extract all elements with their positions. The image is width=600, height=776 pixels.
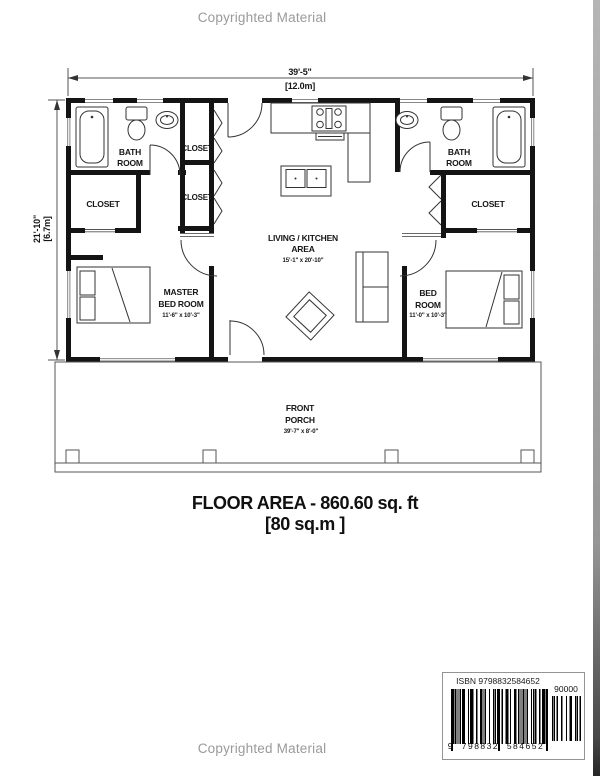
isbn-label: ISBN 9798832584652 [445, 676, 551, 686]
label-closet-right: CLOSET [471, 199, 505, 209]
toilet-right-icon [441, 107, 462, 140]
barcode-addon-bars-icon [552, 696, 582, 741]
back-door-opening [228, 98, 262, 104]
kitchen-island-sink-icon [281, 166, 331, 196]
label-bath-left-2: ROOM [117, 158, 143, 168]
dim-height-ft: 21'-10" [32, 215, 42, 243]
label-bed2-2: ROOM [415, 300, 441, 310]
sofa-icon [356, 252, 388, 322]
label-master: MASTER [164, 287, 199, 297]
sink-right-icon [396, 112, 418, 129]
floor-area-caption: FLOOR AREA - 860.60 sq. ft [80 sq.m ] [0, 493, 600, 535]
label-porch-2: PORCH [285, 415, 315, 425]
label-bath-right: BATH [448, 147, 470, 157]
toilet-left-icon [126, 107, 147, 140]
book-page: Copyrighted Material 39'-5" [12.0m] 21'-… [0, 0, 600, 776]
barcode-bars-icon [451, 689, 548, 744]
label-master-2: BED ROOM [158, 299, 203, 309]
front-door-swing [230, 321, 264, 355]
label-living-dim: 15'-1" x 20'-10" [283, 258, 324, 264]
back-door-swing [228, 103, 262, 137]
barcode-price-code: 90000 [549, 684, 583, 694]
master-bed-icon [77, 267, 150, 323]
label-porch-dim: 39'-7" x 8'-0" [284, 429, 319, 435]
label-bath-right-2: ROOM [446, 158, 472, 168]
label-closet-left: CLOSET [86, 199, 120, 209]
bath-right-door-swing [400, 142, 430, 172]
label-living-2: AREA [291, 244, 314, 254]
floor-area-line2: [80 sq.m ] [0, 514, 600, 535]
sink-left-icon [156, 112, 178, 129]
label-bed2-dim: 11'-0" x 10'-3" [409, 313, 447, 319]
floor-area-line1: FLOOR AREA - 860.60 sq. ft [0, 493, 600, 514]
bathtub-left-icon [76, 107, 108, 167]
label-living: LIVING / KITCHEN [268, 233, 338, 243]
label-porch: FRONT [286, 403, 315, 413]
dim-width-ft: 39'-5" [288, 67, 311, 77]
table-icon [286, 292, 334, 340]
stove-icon [312, 106, 346, 140]
label-closet-mid-top: CLOSET [181, 144, 213, 153]
copyright-notice-bottom: Copyrighted Material [0, 741, 524, 756]
label-bath-left: BATH [119, 147, 141, 157]
bed2-icon [446, 271, 522, 328]
page-edge-shadow [593, 0, 600, 776]
label-master-dim: 11'-6" x 10'-3" [162, 313, 200, 319]
label-closet-mid-bottom: CLOSET [181, 193, 213, 202]
bath-left-door-swing [150, 145, 180, 175]
dim-width-m: [12.0m] [285, 81, 315, 91]
dim-height-m: [6.7m] [42, 216, 52, 242]
label-bed2: BED [419, 288, 436, 298]
bathtub-right-icon [493, 107, 525, 167]
